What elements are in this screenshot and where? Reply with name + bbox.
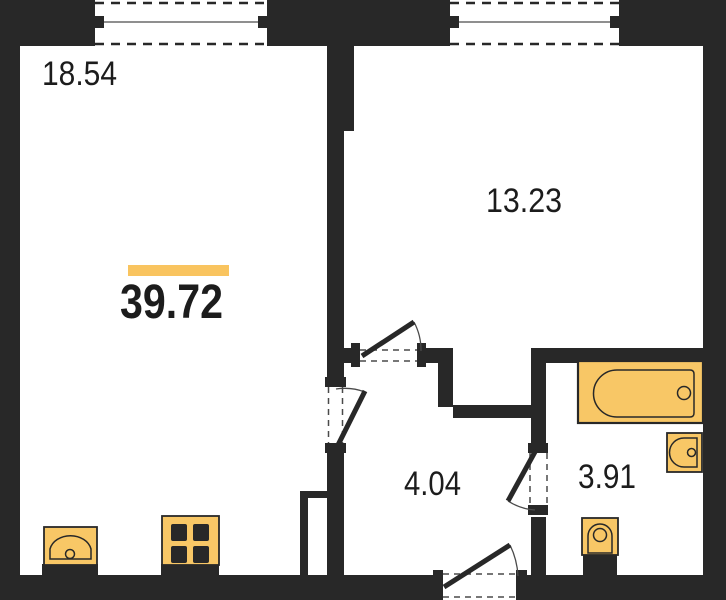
wall-top-right	[627, 0, 726, 46]
room-area-living: 18.54	[42, 55, 117, 93]
wall-shaft-cap	[300, 491, 328, 498]
stove-burner-icon	[171, 546, 187, 563]
toilet-tank	[583, 553, 617, 576]
room-area-bedroom: 13.23	[486, 182, 562, 220]
wall-top-middle	[275, 0, 443, 46]
wall-partition-thin	[327, 130, 344, 349]
wall-top-left	[0, 0, 88, 46]
window-jamb	[267, 0, 275, 46]
wall-bathroom-left-lower	[531, 517, 546, 575]
toilet	[582, 518, 618, 576]
window-jamb	[442, 0, 450, 46]
bathtub	[578, 361, 703, 423]
wall-living-door-lower	[327, 453, 344, 575]
stove-burner-icon	[193, 524, 209, 541]
wall-alcove-bottom	[453, 405, 533, 418]
door-jamb	[351, 343, 360, 367]
window-jamb	[619, 0, 627, 46]
window-end-cap	[95, 16, 104, 28]
room-area-hallway: 4.04	[404, 465, 461, 503]
stove-body	[162, 516, 219, 565]
window-jamb	[87, 0, 95, 46]
wall-sink	[667, 433, 702, 472]
wall-bottom-right	[517, 575, 726, 600]
wall-right	[703, 0, 726, 600]
window-end-cap	[258, 16, 267, 28]
stove-burner-icon	[193, 546, 209, 563]
floor-plan-page: 18.54 13.23 4.04 3.91 39.72	[0, 0, 726, 600]
wall-partition-thick	[327, 46, 354, 131]
window-end-cap	[450, 16, 459, 28]
wall-shaft-side	[300, 498, 308, 575]
stove-burner-icon	[171, 524, 187, 541]
window-end-cap	[610, 16, 619, 28]
floor-plan-drawing: 18.54 13.23 4.04 3.91 39.72	[0, 0, 726, 600]
total-area-accent-bar	[128, 265, 229, 276]
wall-bedroom-door-right	[425, 348, 453, 363]
wall-bottom-left	[0, 575, 443, 600]
kitchen-sink	[42, 527, 98, 575]
wall-alcove-left	[438, 363, 453, 407]
wall-left	[0, 0, 20, 600]
total-area-value: 39.72	[120, 276, 223, 329]
door-jamb	[325, 377, 346, 387]
total-area-badge: 39.72	[120, 265, 229, 329]
door-jamb	[325, 443, 346, 453]
stove	[161, 516, 219, 575]
wall-living-door-upper	[327, 363, 344, 378]
door-jamb	[433, 570, 443, 600]
room-area-bathroom: 3.91	[578, 458, 636, 496]
